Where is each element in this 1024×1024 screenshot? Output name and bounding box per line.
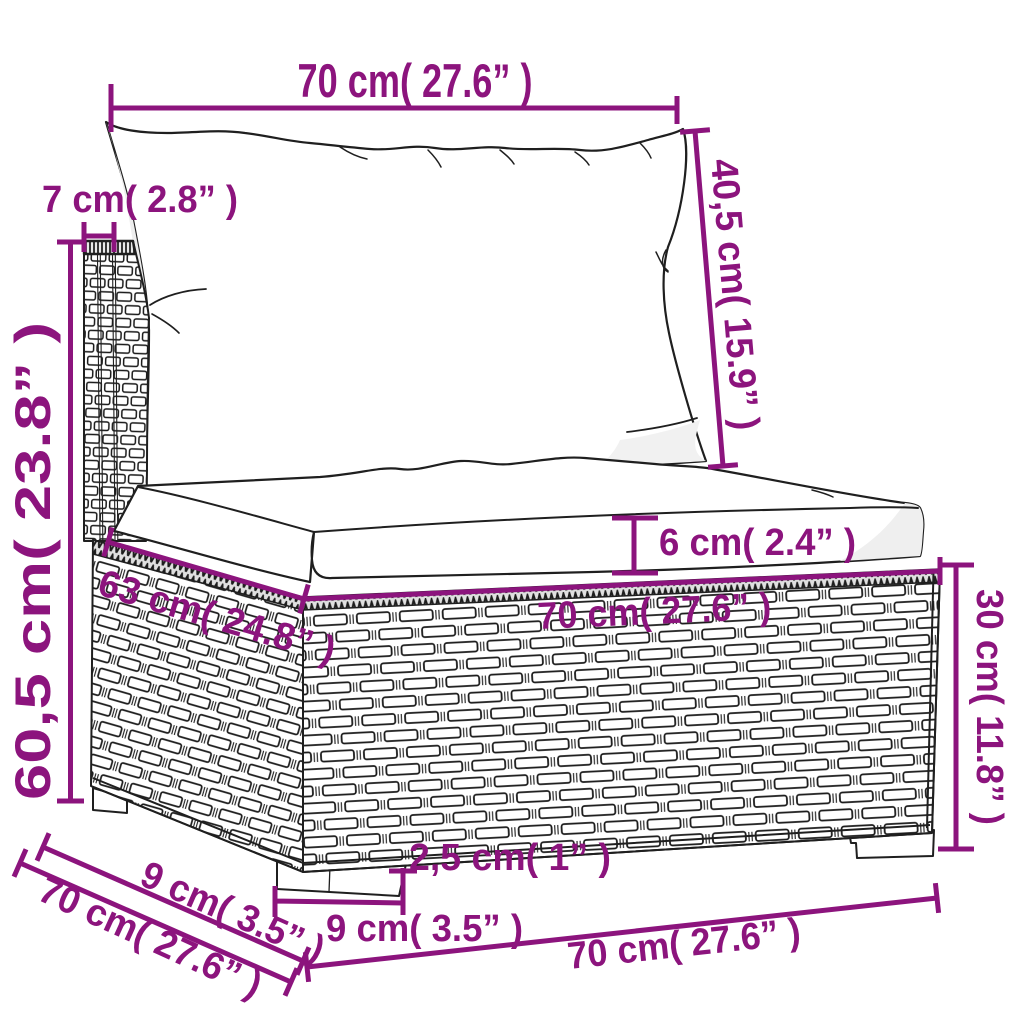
svg-text:40,5 cm( 15.9” ): 40,5 cm( 15.9” ) [702,157,767,432]
svg-text:60,5 cm( 23.8” ): 60,5 cm( 23.8” ) [5,322,61,800]
svg-text:9 cm( 3.5” ): 9 cm( 3.5” ) [326,908,523,950]
svg-text:6 cm( 2.4” ): 6 cm( 2.4” ) [659,522,856,564]
svg-text:7 cm( 2.8” ): 7 cm( 2.8” ) [42,179,238,221]
svg-text:70 cm( 27.6” ): 70 cm( 27.6” ) [565,911,802,978]
svg-text:30 cm( 11.8” ): 30 cm( 11.8” ) [968,589,1010,825]
svg-text:2,5 cm( 1” ): 2,5 cm( 1” ) [409,837,611,879]
svg-text:70 cm( 27.6” ): 70 cm( 27.6” ) [298,54,533,107]
